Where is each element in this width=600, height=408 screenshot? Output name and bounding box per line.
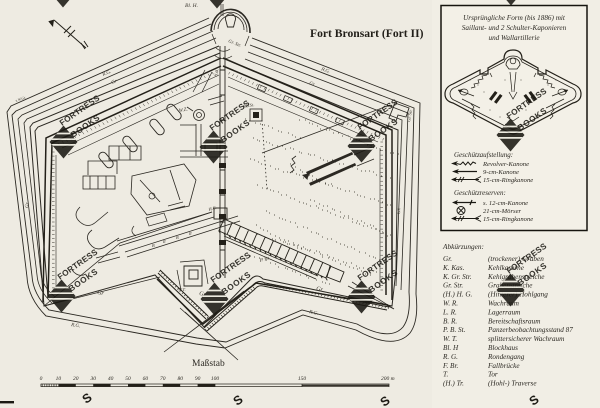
svg-text:Saillant- und 2 Schulter-Kapon: Saillant- und 2 Schulter-Kaponieren [462, 24, 567, 32]
svg-text:60: 60 [143, 376, 149, 382]
svg-text:splittersicherer Wachraum: splittersicherer Wachraum [488, 335, 564, 343]
svg-text:Ursprüngliche Form (bis 1886): Ursprüngliche Form (bis 1886) mit [463, 14, 566, 22]
svg-text:(H.) Tr.: (H.) Tr. [443, 380, 464, 388]
svg-text:Bl. H.: Bl. H. [185, 3, 198, 9]
svg-text:15-cm-Ringkanone: 15-cm-Ringkanone [483, 177, 533, 184]
svg-text:80: 80 [177, 376, 183, 382]
svg-text:Gr.: Gr. [25, 201, 31, 208]
svg-text:100: 100 [211, 376, 220, 382]
svg-text:21-cm-Mörser: 21-cm-Mörser [483, 208, 522, 215]
svg-text:Revolver-Kanone: Revolver-Kanone [482, 161, 529, 168]
svg-text:B: B [152, 243, 155, 248]
svg-text:F. Br.: F. Br. [442, 362, 458, 370]
svg-text:L. R.: L. R. [442, 308, 457, 316]
svg-text:Abkürzungen:: Abkürzungen: [442, 242, 484, 251]
svg-text:Maßstab: Maßstab [192, 358, 225, 369]
svg-text:15-cm-Ringkanone: 15-cm-Ringkanone [483, 216, 533, 223]
svg-text:K. Kas.: K. Kas. [442, 264, 465, 272]
svg-text:Bl. H: Bl. H [443, 344, 459, 352]
svg-text:200 m: 200 m [381, 376, 395, 382]
svg-text:150: 150 [298, 376, 307, 382]
svg-text:s. 12-cm-Kanone: s. 12-cm-Kanone [483, 200, 528, 207]
svg-text:Bereitschaftsraum: Bereitschaftsraum [488, 317, 540, 325]
svg-text:R: R [162, 239, 166, 244]
svg-text:Rondengang: Rondengang [487, 353, 525, 361]
svg-text:Fort Bronsart (Fort II): Fort Bronsart (Fort II) [310, 27, 424, 40]
svg-text:Gr. Str.: Gr. Str. [443, 282, 463, 290]
svg-text:Geschützreserven:: Geschützreserven: [454, 189, 506, 197]
svg-text:K. Gr. Str.: K. Gr. Str. [442, 273, 472, 281]
svg-text:B. R.: B. R. [443, 317, 457, 325]
svg-text:0: 0 [40, 376, 43, 382]
svg-text:50: 50 [125, 376, 131, 382]
svg-text:(Hohl-) Traverse: (Hohl-) Traverse [488, 380, 537, 388]
svg-text:Tor: Tor [488, 371, 498, 379]
svg-text:Lagerraum: Lagerraum [487, 308, 520, 316]
svg-text:und Wallartillerie: und Wallartillerie [488, 34, 540, 42]
svg-text:P. B. St.: P. B. St. [442, 326, 466, 334]
svg-text:9-cm-Kanone: 9-cm-Kanone [483, 169, 519, 176]
svg-text:40: 40 [108, 375, 114, 382]
svg-text:30: 30 [89, 376, 96, 382]
svg-text:Fallbrücke: Fallbrücke [487, 362, 520, 370]
svg-text:(H.) H. G.: (H.) H. G. [443, 291, 473, 299]
svg-text:10: 10 [56, 376, 62, 382]
svg-text:Panzerbeobachtungsstand 87: Panzerbeobachtungsstand 87 [487, 326, 573, 334]
svg-text:W.T.: W.T. [178, 287, 186, 292]
svg-text:Gr.: Gr. [397, 208, 402, 214]
svg-text:W. R.: W. R. [443, 300, 458, 308]
svg-text:90: 90 [195, 376, 201, 382]
svg-text:B: B [176, 235, 179, 240]
svg-text:Blockhaus: Blockhaus [488, 344, 518, 352]
svg-text:R: R [188, 231, 192, 236]
svg-text:Gr.: Gr. [443, 255, 452, 263]
svg-text:70: 70 [160, 376, 166, 382]
svg-text:Geschützaufstellung:: Geschützaufstellung: [454, 151, 513, 159]
svg-text:W. T.: W. T. [443, 335, 457, 343]
svg-text:T.: T. [443, 371, 448, 379]
svg-text:R. G.: R. G. [442, 353, 458, 361]
svg-text:20: 20 [73, 376, 79, 382]
